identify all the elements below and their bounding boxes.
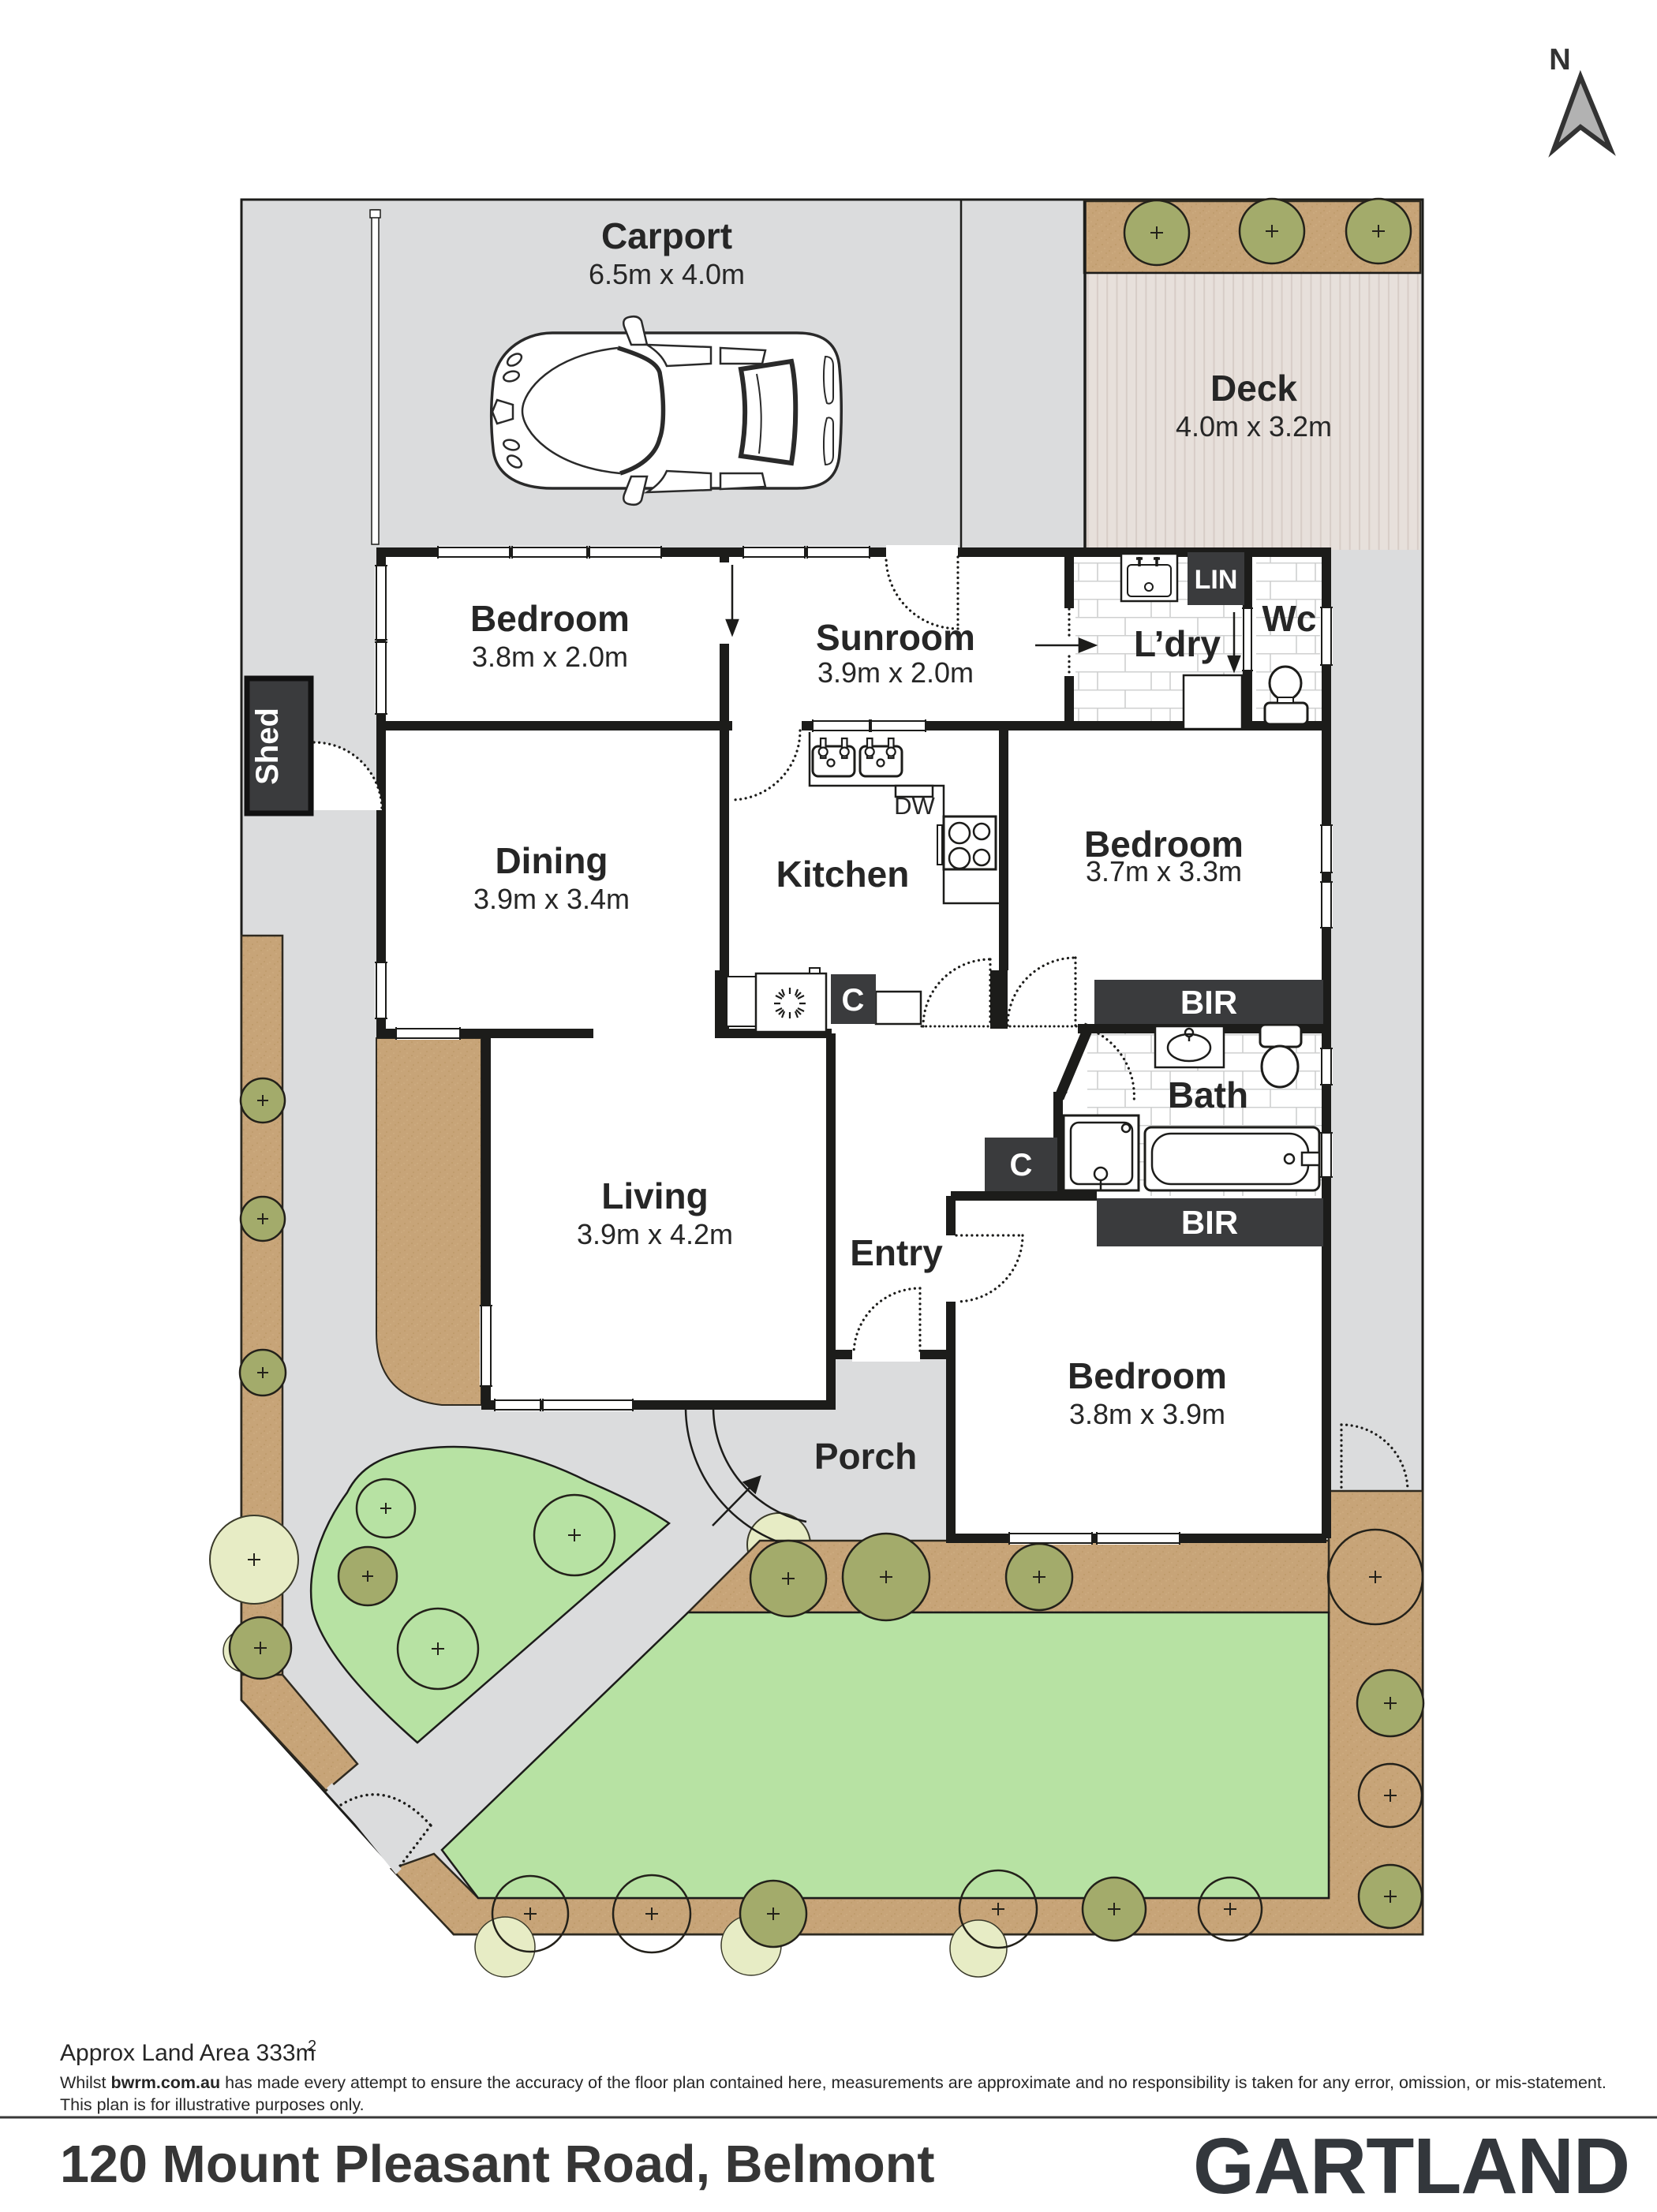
svg-text:BIR: BIR: [1180, 984, 1237, 1021]
svg-text:DW: DW: [894, 792, 935, 820]
svg-text:Shed: Shed: [250, 708, 285, 785]
svg-text:Kitchen: Kitchen: [776, 854, 910, 895]
svg-text:Dining: Dining: [495, 840, 608, 881]
svg-text:3.9m x 4.2m: 3.9m x 4.2m: [577, 1218, 733, 1250]
svg-text:6.5m x 4.0m: 6.5m x 4.0m: [589, 258, 745, 290]
svg-text:L’dry: L’dry: [1134, 623, 1221, 664]
svg-text:Bedroom: Bedroom: [1068, 1355, 1227, 1396]
svg-text:3.7m x 3.3m: 3.7m x 3.3m: [1086, 855, 1242, 887]
svg-text:Bedroom: Bedroom: [470, 598, 630, 639]
svg-text:LIN: LIN: [1195, 565, 1238, 595]
svg-text:C: C: [1010, 1148, 1033, 1183]
svg-text:120 Mount Pleasant Road, Belmo: 120 Mount Pleasant Road, Belmont: [60, 2135, 935, 2194]
svg-text:4.0m x 3.2m: 4.0m x 3.2m: [1176, 410, 1332, 443]
svg-text:Sunroom: Sunroom: [816, 617, 975, 658]
svg-text:Deck: Deck: [1210, 368, 1297, 409]
svg-text:Living: Living: [601, 1175, 708, 1216]
svg-text:3.8m x 2.0m: 3.8m x 2.0m: [472, 641, 628, 673]
svg-text:Approx Land Area 333m: Approx Land Area 333m: [60, 2040, 316, 2066]
svg-text:Bath: Bath: [1168, 1074, 1248, 1115]
svg-text:N: N: [1549, 43, 1570, 77]
svg-text:3.9m x 3.4m: 3.9m x 3.4m: [473, 883, 630, 915]
svg-text:3.8m x 3.9m: 3.8m x 3.9m: [1069, 1398, 1225, 1430]
svg-text:Whilst bwrm.com.au has made ev: Whilst bwrm.com.au has made every attemp…: [60, 2073, 1607, 2092]
svg-text:3.9m x 2.0m: 3.9m x 2.0m: [817, 656, 974, 689]
svg-text:C: C: [842, 983, 865, 1018]
svg-text:2: 2: [308, 2038, 316, 2055]
svg-text:GARTLAND: GARTLAND: [1193, 2122, 1629, 2210]
svg-text:BIR: BIR: [1181, 1204, 1238, 1241]
svg-text:Carport: Carport: [601, 215, 732, 256]
svg-text:Porch: Porch: [814, 1436, 917, 1477]
svg-text:Entry: Entry: [850, 1232, 943, 1273]
svg-text:This plan is for illustrative: This plan is for illustrative purposes o…: [60, 2095, 365, 2114]
svg-text:Wc: Wc: [1262, 598, 1317, 639]
